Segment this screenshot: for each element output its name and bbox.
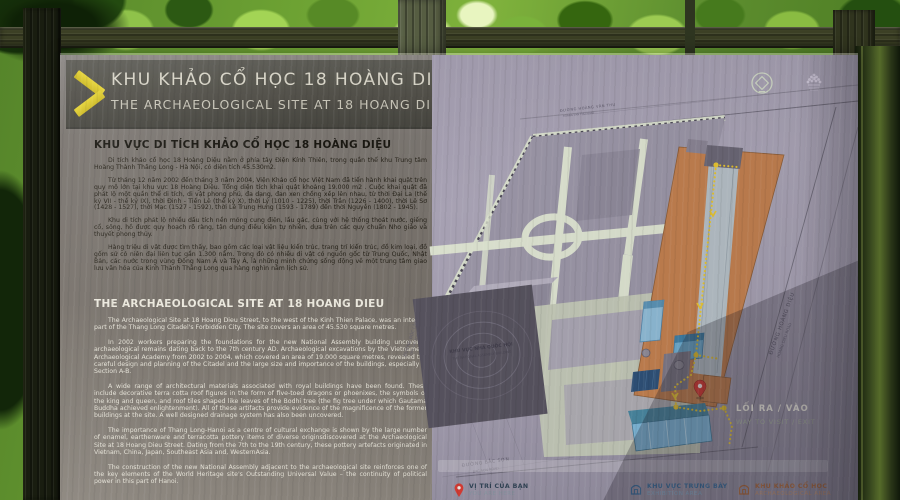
legend-exhibition-area: KHU VỰC TRƯNG BÀY EXHIBITION AREA [630,483,728,497]
top-notch-block [686,139,708,154]
sign-header-band: KHU KHẢO CỔ HỌC 18 HOÀNG DIỆU THE ARCHAE… [66,60,432,129]
legend-you-are-here: VỊ TRÍ CỦA BẠN YOU ARE HERE [454,483,528,498]
english-paragraph: A wide range of architectural materials … [94,383,427,420]
english-section-heading: THE ARCHAEOLOGICAL SITE AT 18 HOANG DIEU [94,298,427,310]
map-legend: VỊ TRÍ CỦA BẠN YOU ARE HERE KHU VỰC TRƯN… [432,483,858,500]
national-assembly-block: KHU VỰC NHÀ QUỐC HỘI THE NATIONAL ASSEMB… [413,285,548,429]
sign-title-vietnamese: KHU KHẢO CỔ HỌC 18 HOÀNG DIỆU [111,70,459,90]
thang-long-emblem-icon [807,74,821,90]
legend-label-en: EXHIBITION AREA [647,491,728,497]
vietnamese-paragraph: Từ tháng 12 năm 2002 đến tháng 3 năm 200… [94,178,427,213]
wooden-post-left [23,8,61,500]
site-plan-map: KHU VỰC NHÀ QUỐC HỘI THE NATIONAL ASSEMB… [432,55,858,500]
photo-scene: KHU KHẢO CỔ HỌC 18 HOÀNG DIỆU THE ARCHAE… [0,0,900,500]
english-section: THE ARCHAEOLOGICAL SITE AT 18 HOANG DIEU… [94,298,427,493]
legend-archaeological-area: KHU KHẢO CỔ HỌC ARCHAEOLOGICAL AREA [738,483,831,497]
vietnamese-section: KHU VỰC DI TÍCH KHẢO CỔ HỌC 18 HOÀNG DIỆ… [94,139,427,279]
plan-bottom-strip [438,460,828,472]
english-paragraph: The Archaeological Site at 18 Hoang Dieu… [94,317,427,332]
map-panel: KHU VỰC NHÀ QUỐC HỘI THE NATIONAL ASSEMB… [432,55,858,500]
information-sign-board: KHU KHẢO CỔ HỌC 18 HOÀNG DIỆU THE ARCHAE… [60,53,858,500]
chevron-right-icon [75,70,107,118]
vietnamese-paragraph: Di tích khảo cổ học 18 Hoàng Diệu nằm ở … [94,158,427,172]
exit-label-vi: LỐI RA / VÀO [736,401,809,414]
vietnamese-section-heading: KHU VỰC DI TÍCH KHẢO CỔ HỌC 18 HOÀNG DIỆ… [94,139,427,151]
exit-label-en: WAY TO VISIT / EXIT [736,418,816,426]
english-paragraph: The importance of Thang Long-Hanoi as a … [94,427,427,457]
wooden-post-center [398,0,446,58]
english-paragraph: In 2002 workers preparing the foundation… [94,339,427,376]
legend-label-en: ARCHAEOLOGICAL AREA [755,491,831,497]
red-pin-icon [454,483,464,498]
legend-label-vi: KHU KHẢO CỔ HỌC [755,483,831,490]
vietnamese-paragraph: Khu di tích phát lộ nhiều dấu tích nền m… [94,218,427,239]
english-paragraph: The construction of the new National Ass… [94,464,427,486]
world-heritage-emblem-icon [752,73,772,93]
legend-label-en: YOU ARE HERE [469,491,528,497]
archaeology-house-icon [738,483,750,495]
legend-label-vi: KHU VỰC TRƯNG BÀY [647,483,728,490]
wooden-edge-right [855,46,900,500]
vietnamese-paragraph: Hàng triệu di vật được tìm thấy, bao gồm… [94,245,427,273]
sign-title-english: THE ARCHAEOLOGICAL SITE AT 18 HOANG DIEU [111,97,450,112]
legend-label-vi: VỊ TRÍ CỦA BẠN [469,483,528,490]
exhibition-house-icon [630,483,642,495]
wooden-top-rail [0,27,900,48]
text-panel: KHU KHẢO CỔ HỌC 18 HOÀNG DIỆU THE ARCHAE… [60,55,432,500]
thin-pole [685,0,695,56]
